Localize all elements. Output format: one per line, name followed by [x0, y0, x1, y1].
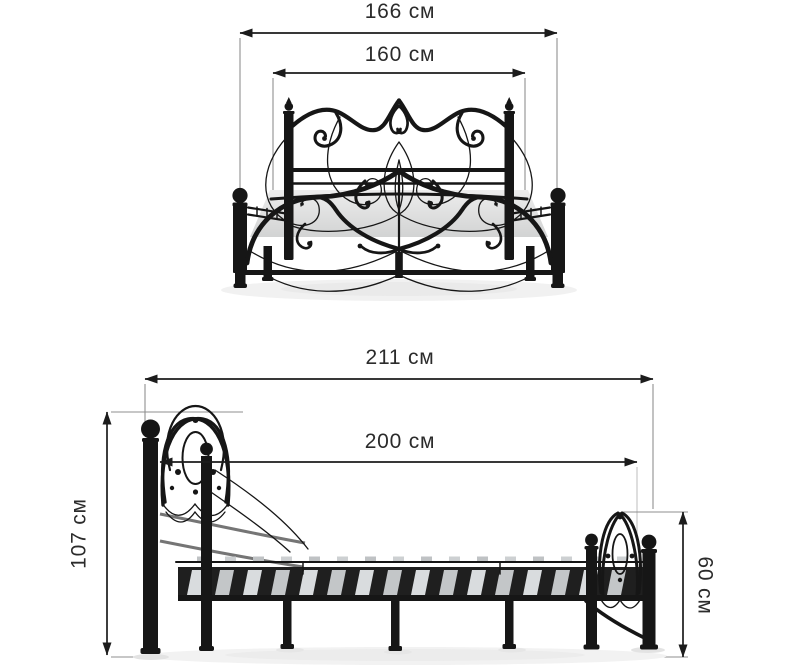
side-rail	[178, 595, 646, 601]
footboard-front-post	[586, 547, 597, 648]
diagram-canvas	[0, 0, 800, 668]
dimension-label-side-mattress-length: 200 см	[330, 431, 470, 452]
side-footboard	[584, 513, 659, 650]
post-finial	[285, 102, 294, 111]
headboard-main-post	[143, 438, 158, 652]
footboard-finial-ball-side	[585, 534, 598, 547]
dimension-label-front-mattress-width: 160 см	[330, 44, 470, 65]
dimension-label-headboard-height: 107 см	[69, 484, 90, 584]
dimension-label-footboard-height: 60 см	[695, 536, 716, 636]
dimension-label-side-total-length: 211 см	[330, 347, 470, 368]
headboard-inner-post	[201, 456, 212, 648]
front-view-bed-illustration	[221, 97, 577, 301]
footboard-corner-post	[643, 550, 656, 648]
support-legs	[281, 601, 517, 651]
footboard-finial-ball	[232, 188, 247, 203]
slat-deck	[176, 557, 646, 602]
side-headboard	[141, 406, 229, 654]
dimension-label-front-total-width: 166 см	[330, 1, 470, 22]
center-support-leg	[395, 252, 403, 278]
headboard-finial-ball	[141, 420, 160, 439]
headboard-post	[284, 112, 294, 260]
bed-dimensions-diagram: 166 см 160 см 211 см 200 см 107 см 60 см	[0, 0, 800, 668]
